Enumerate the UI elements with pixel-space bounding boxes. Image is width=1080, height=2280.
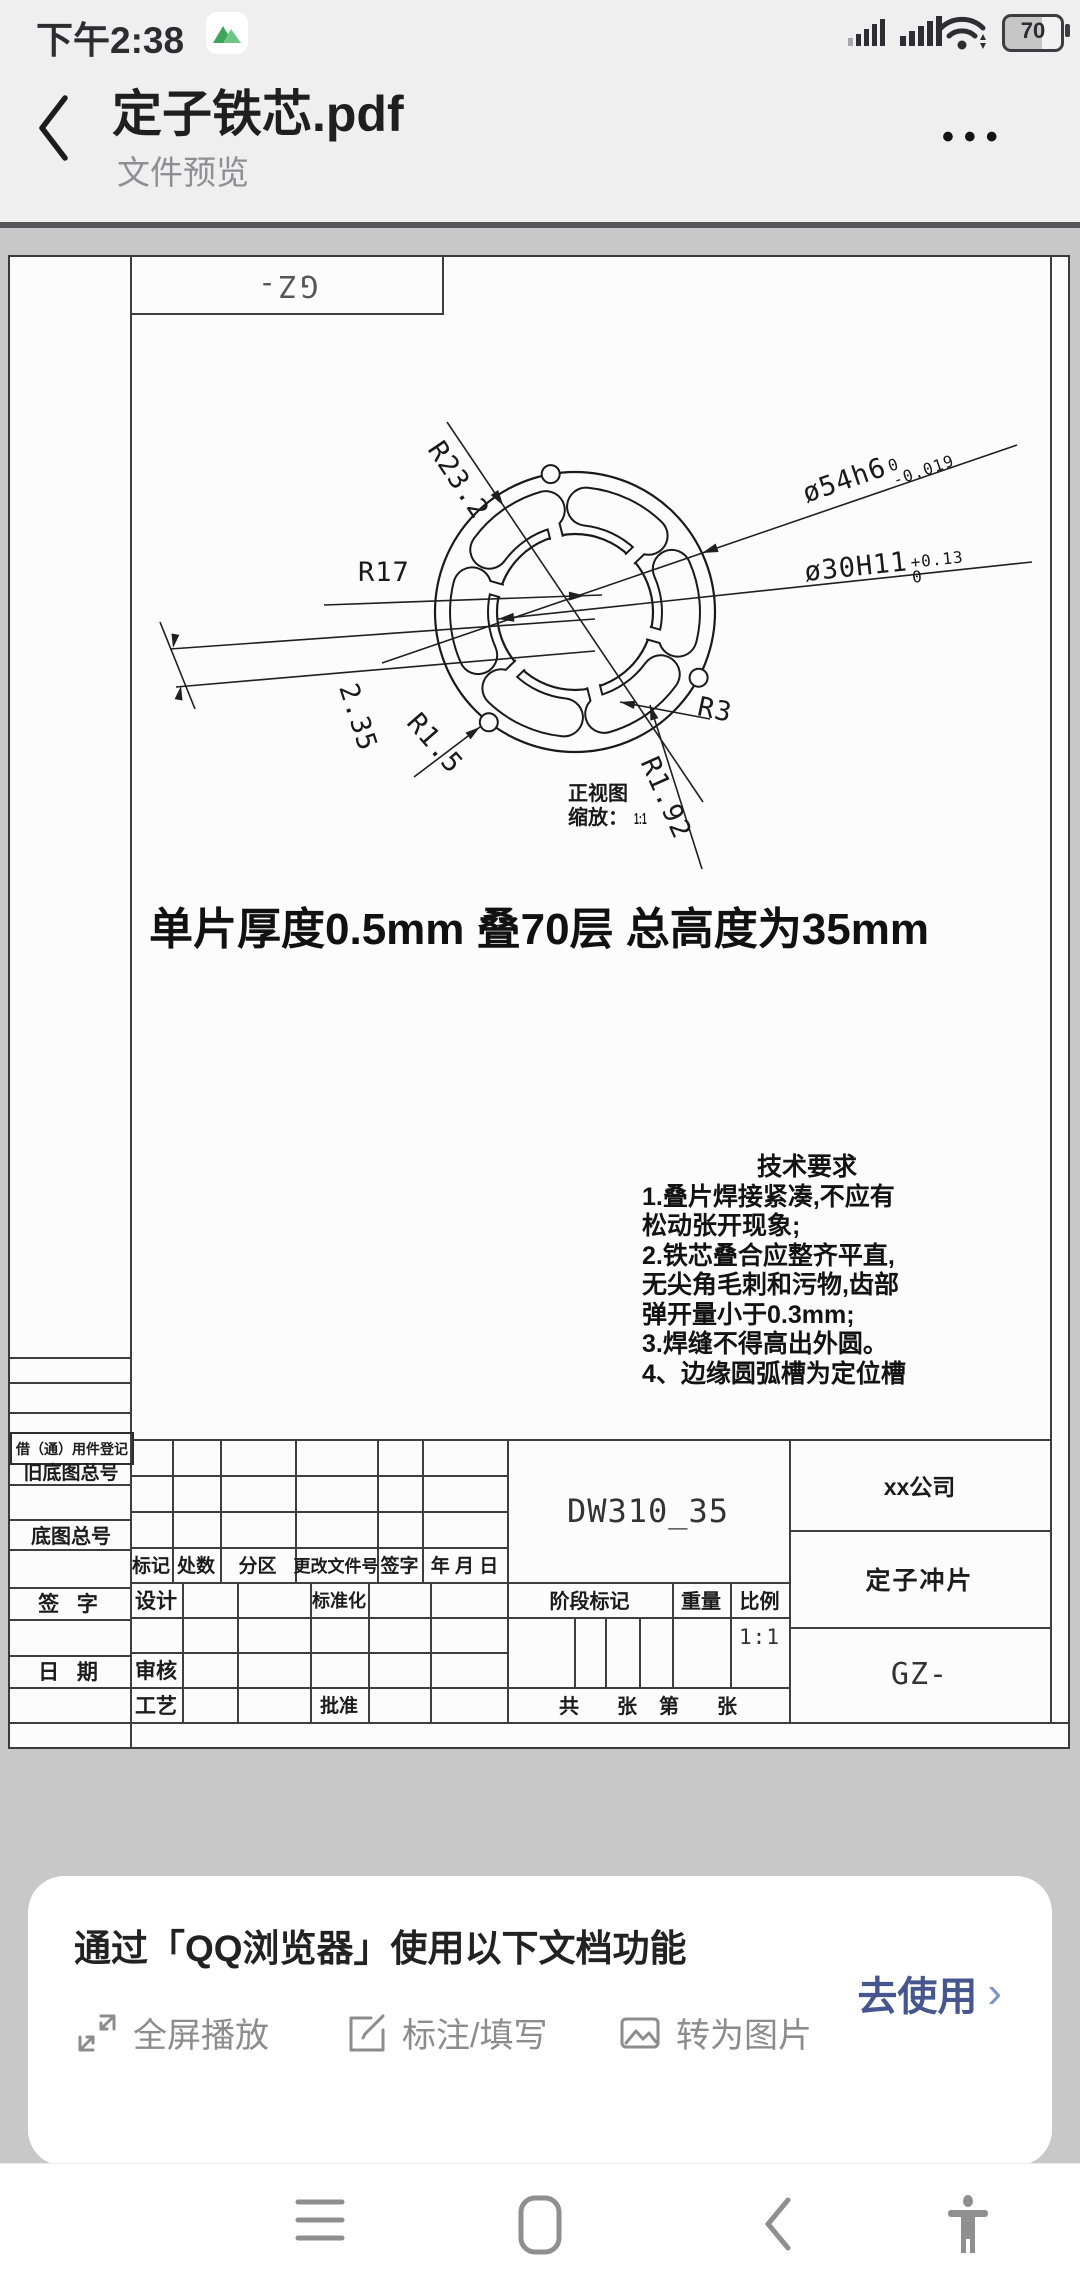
- stage-label: 阶段标记: [507, 1582, 672, 1617]
- nav-bar: [0, 2163, 1080, 2280]
- page-subtitle: 文件预览: [117, 146, 249, 194]
- left-row-base-no: 底图总号: [10, 1519, 132, 1549]
- left-row-sign: 签 字: [10, 1587, 132, 1619]
- accessibility-button[interactable]: [940, 2194, 996, 2256]
- role-approve: 批准: [310, 1687, 368, 1722]
- material: DW310_35: [507, 1439, 789, 1582]
- role-process: 工艺: [130, 1687, 182, 1722]
- status-bar: 下午2:38: [0, 0, 1080, 60]
- tech-requirements: 技术要求 1.叠片焊接紧凑,不应有 松动张开现象; 2.铁芯叠合应整齐平直, 无…: [642, 1153, 1056, 1389]
- page-title: 定子铁芯.pdf: [112, 74, 404, 146]
- rev-h-zone: 分区: [220, 1547, 295, 1582]
- rev-h-docno: 更改文件号: [295, 1547, 377, 1582]
- qq-browser-banner: 通过「QQ浏览器」使用以下文档功能 全屏播放: [28, 1876, 1052, 2166]
- battery-icon: 70: [1002, 14, 1064, 52]
- recents-button[interactable]: [295, 2194, 345, 2250]
- frame-right: [1050, 257, 1052, 1722]
- frame-bottom: [10, 1722, 1068, 1724]
- stator-drawing: [10, 277, 1068, 897]
- feature-label: 转为图片: [676, 2008, 812, 2057]
- role-standard: 标准化: [310, 1582, 368, 1617]
- phone-screen: 下午2:38: [0, 0, 1080, 2280]
- back-icon[interactable]: [32, 92, 76, 164]
- scale-label: 比例: [730, 1582, 789, 1617]
- pdf-page[interactable]: GZ-: [8, 255, 1070, 1749]
- rev-h-date: 年 月 日: [422, 1547, 507, 1582]
- left-row-old-no: 旧底图总号: [10, 1459, 132, 1484]
- left-row-date: 日 期: [10, 1655, 132, 1687]
- battery-level: 70: [1005, 18, 1061, 44]
- overflow-menu-icon[interactable]: •••: [942, 118, 1008, 157]
- view-label: 正视图 缩放： 1:1: [568, 782, 657, 832]
- app-notification-icon: [206, 12, 248, 54]
- banner-title: 通过「QQ浏览器」使用以下文档功能: [74, 1918, 687, 1972]
- top-chrome: 下午2:38: [0, 0, 1080, 222]
- sheet-count: 共 张 第 张: [507, 1687, 789, 1722]
- rev-h-count: 处数: [172, 1547, 220, 1582]
- drawing-code: GZ-: [789, 1627, 1050, 1722]
- weight-label: 重量: [672, 1582, 730, 1617]
- feature-annotate[interactable]: 标注/填写: [343, 2008, 547, 2057]
- dim-R17: R17: [358, 557, 410, 588]
- feature-label: 全屏播放: [133, 2008, 269, 2057]
- company: xx公司: [789, 1439, 1050, 1530]
- role-check: 审核: [130, 1652, 182, 1687]
- rev-h-sign: 签字: [377, 1547, 422, 1582]
- tech-title: 技术要求: [642, 1153, 972, 1183]
- use-now-button[interactable]: 去使用 ›: [857, 1964, 1002, 2022]
- fullscreen-icon: [74, 2010, 120, 2056]
- feature-fullscreen[interactable]: 全屏播放: [74, 2008, 269, 2057]
- home-button[interactable]: [517, 2194, 563, 2256]
- back-button[interactable]: [760, 2194, 796, 2254]
- rev-h-mark: 标记: [130, 1547, 172, 1582]
- role-design: 设计: [130, 1582, 182, 1617]
- feature-to-image[interactable]: 转为图片: [617, 2008, 812, 2057]
- clock: 下午2:38: [36, 10, 184, 64]
- part-name: 定子冲片: [789, 1530, 1050, 1627]
- image-icon: [617, 2010, 663, 2056]
- annotate-icon: [343, 2010, 389, 2056]
- appbar-divider: [0, 222, 1080, 228]
- scale-value: 1:1: [730, 1617, 789, 1657]
- feature-label: 标注/填写: [402, 2008, 547, 2057]
- wifi-icon: [936, 10, 992, 54]
- stack-note: 单片厚度0.5mm 叠70层 总高度为35mm: [10, 893, 1068, 957]
- chevron-right-icon: ›: [987, 1968, 1002, 2018]
